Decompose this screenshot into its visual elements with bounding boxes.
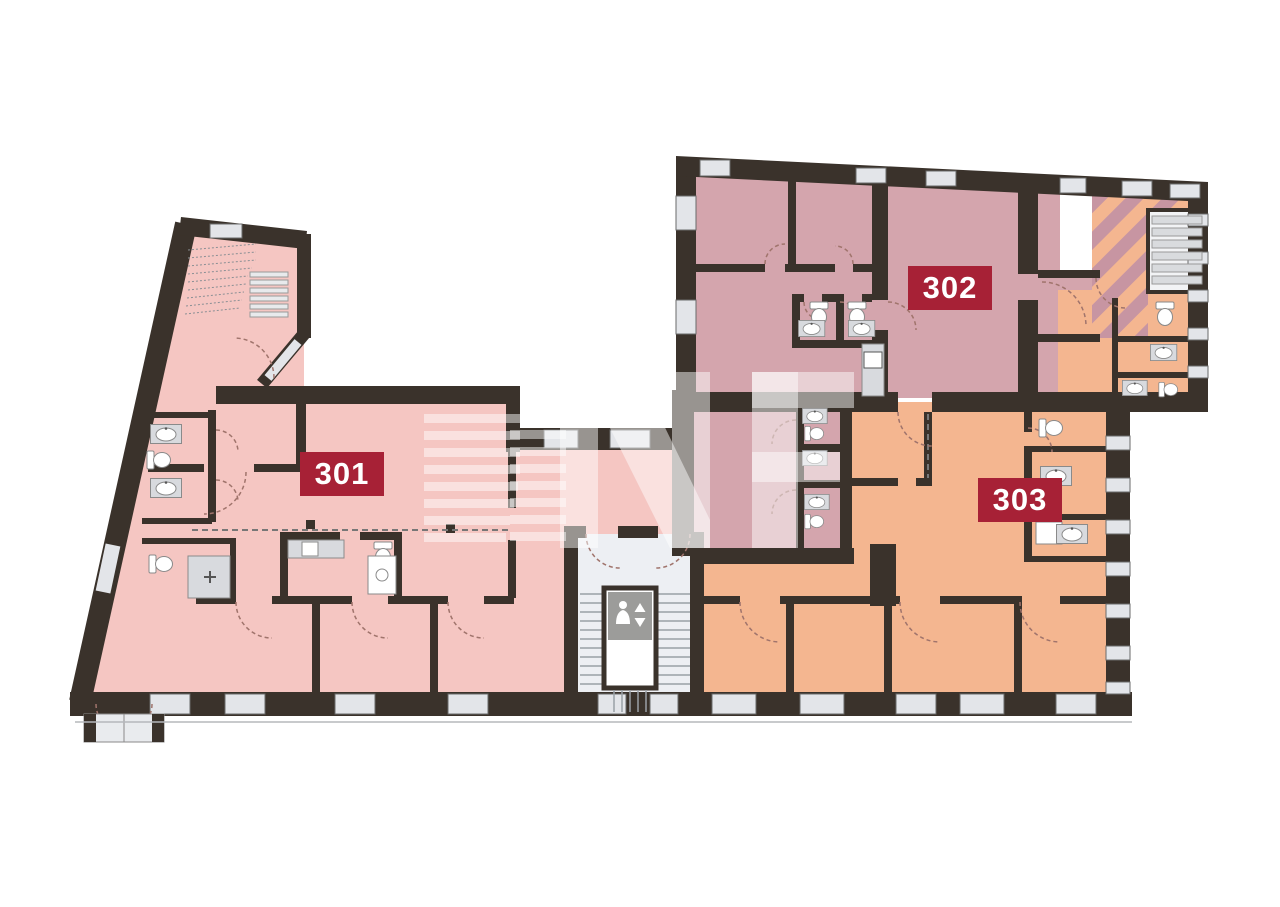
toilet-icon [1156, 302, 1174, 326]
partition [508, 540, 516, 598]
partition [280, 534, 288, 598]
partition [360, 532, 402, 540]
unit-label: 303 [993, 482, 1048, 517]
partition [853, 264, 872, 272]
partition [230, 538, 236, 600]
wall-lowerwing-bottom [694, 548, 854, 564]
window-302-left-b [676, 300, 696, 334]
wall-lobby-left [564, 532, 578, 702]
wall-passage-bottom [1038, 334, 1100, 342]
wall-wing-bathroom-h1 [1112, 336, 1190, 342]
partition [208, 410, 216, 522]
wall-lowerwing-right [840, 404, 852, 548]
column [446, 524, 455, 533]
floor-plan-svg: 301 302 303 [0, 0, 1280, 907]
sink-icon [798, 320, 824, 336]
elevator-cab [608, 592, 652, 640]
sink-icon [848, 320, 874, 336]
toilet-icon [805, 514, 824, 528]
wall-bigroom-left-a [872, 176, 888, 300]
wall-301-top [216, 386, 516, 404]
partition [884, 596, 892, 700]
sink-icon [804, 494, 829, 509]
porch-pier [84, 714, 96, 742]
partition [940, 596, 1020, 604]
partition [780, 596, 900, 604]
partition [696, 264, 765, 272]
entrance-porch [84, 714, 164, 742]
partition [862, 294, 872, 302]
toilet-icon [1039, 419, 1063, 437]
partition [142, 518, 212, 524]
window-302-left-a [676, 196, 696, 230]
partition [388, 596, 448, 604]
window-slant-wall [103, 545, 113, 592]
wall-passage-top [1038, 270, 1100, 278]
partition [254, 464, 304, 472]
unit-label: 301 [315, 456, 370, 491]
partition [694, 596, 740, 604]
floor-plan-canvas: 301 302 303 [0, 0, 1280, 907]
partition [1024, 520, 1032, 560]
panel-302 [864, 352, 882, 368]
partition [1024, 412, 1032, 432]
window-stairblock-top [210, 224, 242, 238]
partition [848, 478, 898, 486]
kitchen-sink [302, 542, 318, 556]
toilet-icon [1159, 382, 1178, 396]
column [306, 520, 315, 529]
partition [430, 596, 438, 700]
wall-bigroom-right-a [1018, 178, 1038, 274]
partition [140, 412, 212, 418]
wall-wing-bathroom-h2 [1112, 372, 1190, 378]
toilet-icon [149, 555, 173, 573]
partition [786, 596, 794, 700]
unit-badge-301[interactable]: 301 [300, 452, 384, 496]
partition [916, 478, 932, 486]
toilet-icon [147, 451, 171, 469]
wall-lobby-top-b [618, 526, 658, 538]
sink-icon [1057, 525, 1088, 544]
sink-icon [802, 408, 827, 423]
sink-icon [1122, 380, 1147, 395]
wall-302-303-boundary-b [932, 392, 1208, 412]
wall-wing-bathroom-left [1112, 298, 1118, 412]
unit-badge-302[interactable]: 302 [908, 266, 992, 310]
sink-icon [1150, 344, 1176, 360]
wall-302-left [676, 158, 696, 394]
partition [1024, 446, 1108, 452]
partition [142, 538, 234, 544]
partition [280, 532, 340, 540]
partition [1024, 556, 1108, 562]
partition [312, 596, 320, 700]
partition [1060, 596, 1108, 604]
partition [788, 176, 796, 268]
toilet-icon [805, 426, 824, 440]
unit-badge-303[interactable]: 303 [978, 478, 1062, 522]
wall-bigroom-right-b [1018, 300, 1038, 398]
shower-tray [368, 556, 396, 594]
partition [785, 264, 835, 272]
sink-icon [151, 425, 182, 444]
porch-pier [152, 714, 164, 742]
sink-icon [151, 479, 182, 498]
unit-label: 302 [923, 270, 978, 305]
